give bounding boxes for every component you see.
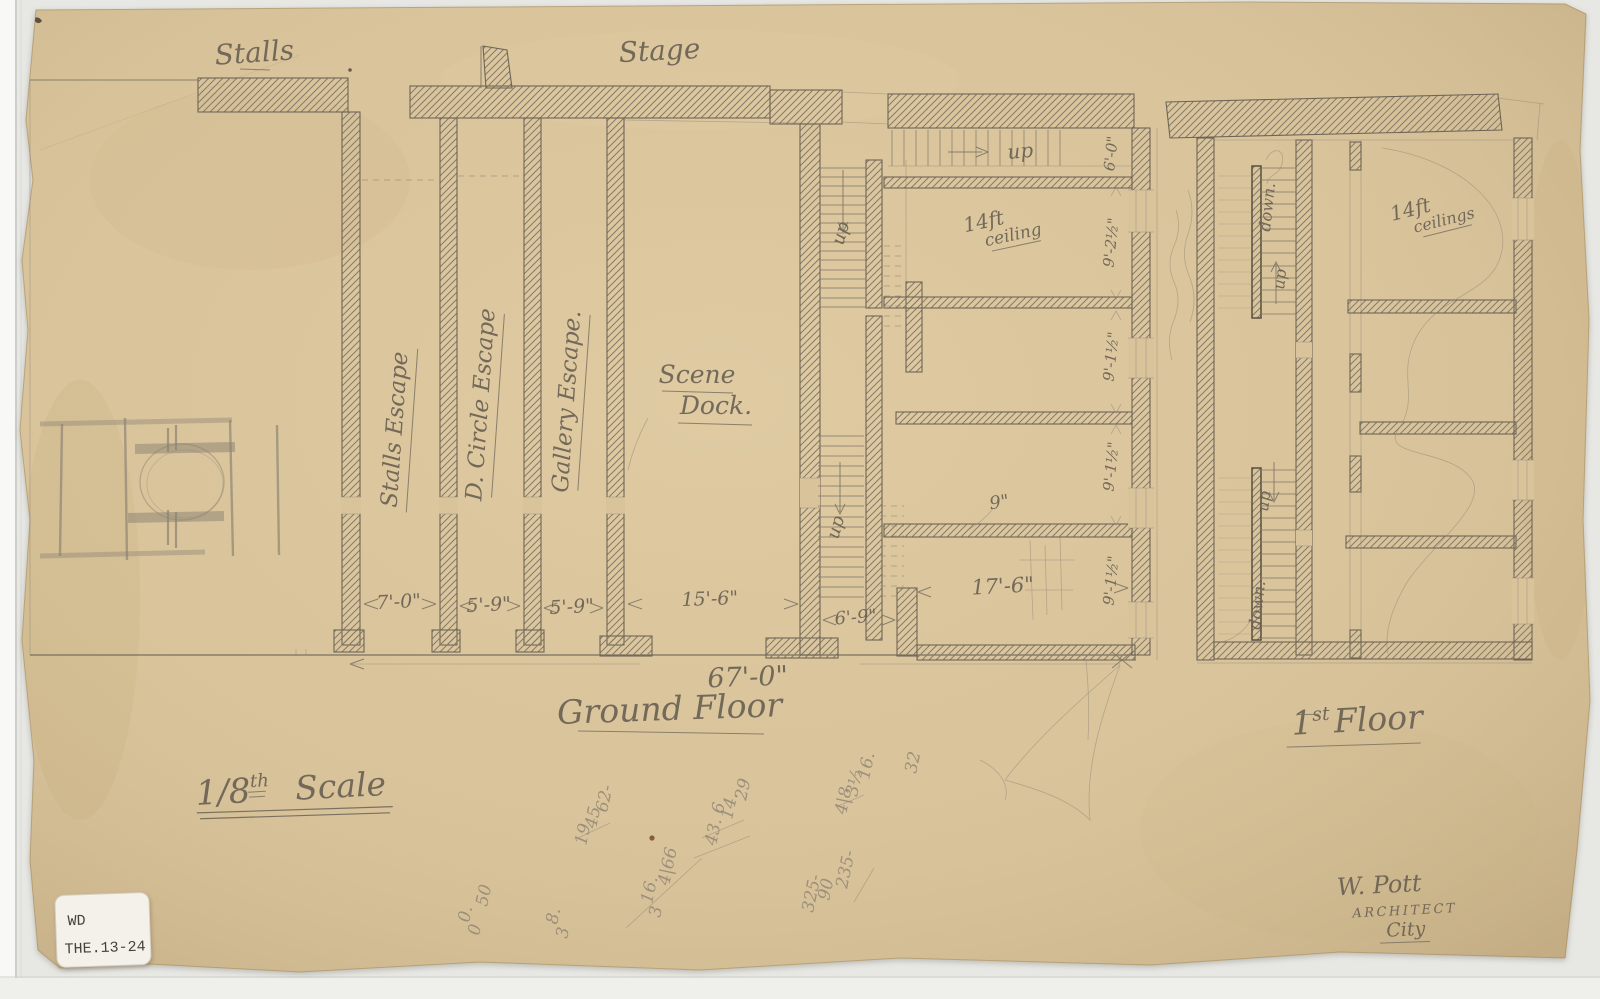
stalls-top-wall: [198, 78, 348, 112]
label-stalls: Stalls: [214, 33, 296, 71]
archive-sticker: WD THE.13-24: [55, 892, 151, 967]
first-floor-right-wall: [1512, 138, 1534, 660]
label-dock: Dock.: [679, 391, 752, 420]
stage-top-wall: [410, 86, 770, 118]
stage-left-wall: [800, 124, 820, 655]
first-floor-top-wall: [1166, 94, 1502, 138]
stair-spine-wall: [866, 160, 882, 308]
dim-6-9: 6'-9": [834, 606, 878, 630]
dim-5-9-a: 5'-9": [466, 593, 512, 617]
dim-15-6: 15'-6": [681, 587, 738, 611]
signature-city: City: [1386, 918, 1426, 942]
first-floor-bottom-wall: [1214, 642, 1532, 659]
sticker-line1: WD: [67, 913, 86, 931]
wall-flag: [483, 46, 512, 88]
stub-wall: [897, 588, 917, 656]
sticker-line2: THE.13-24: [64, 938, 146, 958]
svg-text:1stFloor: 1stFloor: [1291, 697, 1426, 743]
stair-hall-wall: [1296, 140, 1312, 655]
scanned-architectural-drawing: Stalls Stage Stalls Escape D. Circle Esc…: [0, 0, 1600, 999]
first-floor-left-wall: [1197, 138, 1214, 660]
dim-17-6: 17'-6": [971, 572, 1035, 599]
dim-5-9-b: 5'-9": [549, 595, 595, 619]
dim-7-0: 7'-0": [376, 590, 422, 614]
label-stage: Stage: [618, 32, 701, 69]
title-ground-floor: Ground Floor: [556, 685, 785, 732]
label-up-ground-top: up: [1006, 138, 1034, 164]
label-up-first-upper: up: [1269, 268, 1290, 290]
label-up-first-lower: up: [1253, 490, 1274, 512]
label-scene: Scene: [659, 360, 736, 389]
dim-v-6-0: 6'-0": [1100, 135, 1122, 172]
signature-name: W. Pott: [1336, 869, 1422, 901]
